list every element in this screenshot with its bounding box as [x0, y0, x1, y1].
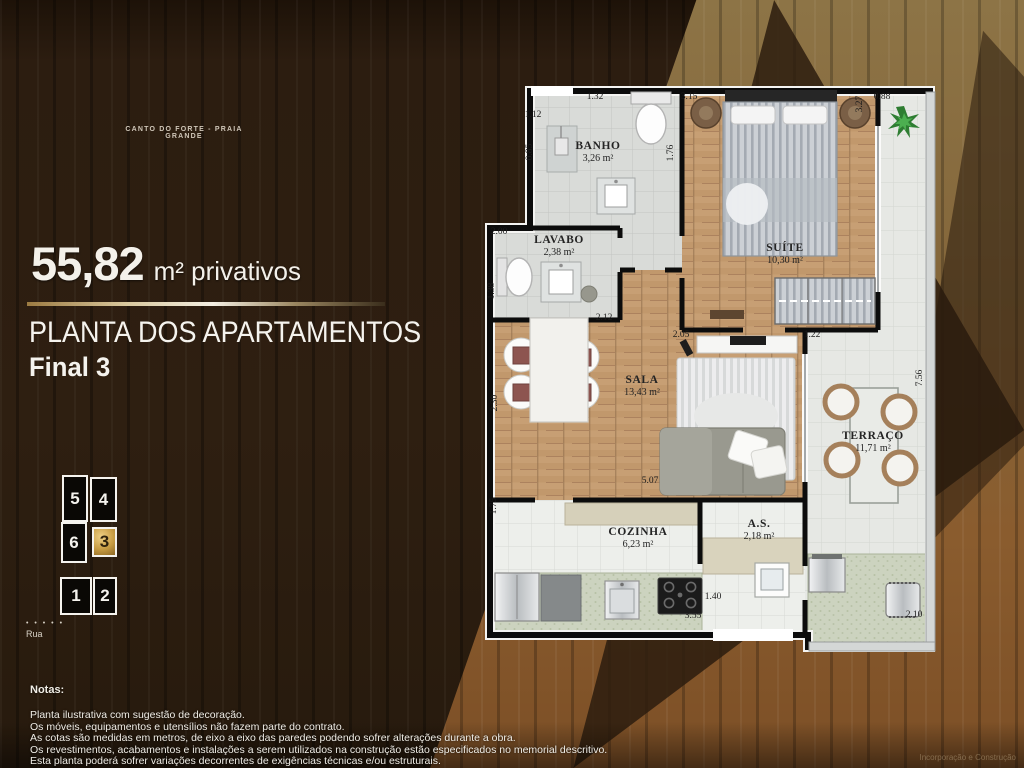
- fridge: [495, 573, 581, 621]
- room-area: 13,43 m²: [624, 387, 660, 398]
- dimension-label: 1.40: [705, 592, 722, 602]
- room-area: 6,23 m²: [608, 539, 667, 550]
- floorplan: BANHO 3,26 m² SUÍTE 10,30 m² LAVABO 2,38…: [485, 86, 937, 656]
- dimension-label: 1.75: [489, 498, 499, 515]
- dimension-label: 7.56: [915, 370, 925, 387]
- keyplan-unit: 6: [61, 522, 87, 563]
- room-area: 2,38 m²: [534, 247, 584, 258]
- street-label: Rua: [26, 629, 64, 639]
- keyplan-unit: 1: [60, 577, 92, 615]
- room-name: TERRAÇO: [842, 430, 904, 442]
- room-area: 11,71 m²: [842, 443, 904, 454]
- dimension-label: 2.00: [491, 227, 508, 237]
- project-location-label: CANTO DO FORTE - PRAIA GRANDE: [120, 126, 248, 140]
- floorplan-drawing: [485, 86, 937, 656]
- area-value: 55,82: [31, 236, 144, 291]
- keyplan-unit-number: 4: [99, 490, 108, 510]
- unit-final-label: Final 3: [29, 352, 110, 383]
- page-title: PLANTA DOS APARTAMENTOS: [29, 316, 421, 350]
- notes-block: Notas: Planta ilustrativa com sugestão d…: [30, 684, 607, 768]
- private-area-headline: 55,82 m² privativos: [31, 236, 301, 291]
- street-dots: • • • • •: [26, 620, 64, 627]
- cooktop: [658, 578, 702, 614]
- room-name: LAVABO: [534, 234, 584, 246]
- dimension-label: 0.85: [525, 144, 535, 161]
- note-line: Planta ilustrativa com sugestão de decor…: [30, 710, 607, 722]
- dimension-label: 2.05: [673, 330, 690, 340]
- dimension-label: 0.88: [874, 92, 891, 102]
- keyplan-unit-number: 2: [100, 586, 109, 606]
- service-door: [713, 629, 793, 641]
- wardrobe: [775, 278, 875, 324]
- kitchen-sink: [605, 581, 639, 619]
- dimension-label: 2.30: [490, 395, 500, 412]
- keyplan-unit: 3: [92, 527, 117, 557]
- keyplan-unit: 4: [90, 477, 117, 522]
- room-area: 2,18 m²: [744, 531, 775, 542]
- dimension-label: 3.15: [681, 92, 698, 102]
- room-name: BANHO: [575, 140, 620, 152]
- keyplan-unit-number: 6: [69, 533, 78, 553]
- dimension-label: 2.10: [906, 610, 923, 620]
- room-name: A.S.: [744, 518, 775, 530]
- notes-title: Notas:: [30, 684, 607, 696]
- dimension-label: 2.12: [596, 313, 613, 323]
- keyplan-unit: 5: [62, 475, 88, 522]
- dimension-label: 1.32: [587, 92, 604, 102]
- room-label: SALA 13,43 m²: [624, 374, 660, 398]
- dimension-label: 3.55: [685, 611, 702, 621]
- room-name: SUÍTE: [766, 242, 804, 254]
- room-area: 10,30 m²: [766, 255, 804, 266]
- room-name: COZINHA: [608, 526, 667, 538]
- room-label: BANHO 3,26 m²: [575, 140, 620, 164]
- room-label: LAVABO 2,38 m²: [534, 234, 584, 258]
- keyplan-unit-number: 5: [70, 489, 79, 509]
- keyplan-unit-number: 3: [100, 532, 109, 552]
- room-label: TERRAÇO 11,71 m²: [842, 430, 904, 454]
- notes-lines: Planta ilustrativa com sugestão de decor…: [30, 710, 607, 768]
- room-label: COZINHA 6,23 m²: [608, 526, 667, 550]
- room-label: A.S. 2,18 m²: [744, 518, 775, 542]
- sofa: [660, 428, 788, 495]
- divider-line: [27, 302, 385, 306]
- dimension-label: 1.12: [525, 110, 542, 120]
- dimension-label: 1.76: [666, 145, 676, 162]
- entry-door: [531, 86, 573, 96]
- keyplan-unit: 2: [93, 577, 117, 615]
- keyplan-unit-number: 1: [71, 586, 80, 606]
- room-name: SALA: [624, 374, 660, 386]
- dimension-label: 3.27: [855, 96, 865, 113]
- street-indicator: • • • • • Rua: [26, 620, 64, 639]
- tv-rack: [680, 336, 797, 356]
- keyplan: 5 4 6 3 1 2: [55, 470, 125, 620]
- note-line: Esta planta poderá sofrer variações deco…: [30, 756, 607, 768]
- room-label: SUÍTE 10,30 m²: [766, 242, 804, 266]
- area-unit: m² privativos: [154, 256, 301, 287]
- builder-credit: Incorporação e Construção: [836, 753, 1016, 762]
- dimension-label: 5.07: [642, 476, 659, 486]
- room-area: 3,26 m²: [575, 153, 620, 164]
- dimension-label: 1.22: [804, 330, 821, 340]
- dimension-label: 1.38: [487, 283, 497, 300]
